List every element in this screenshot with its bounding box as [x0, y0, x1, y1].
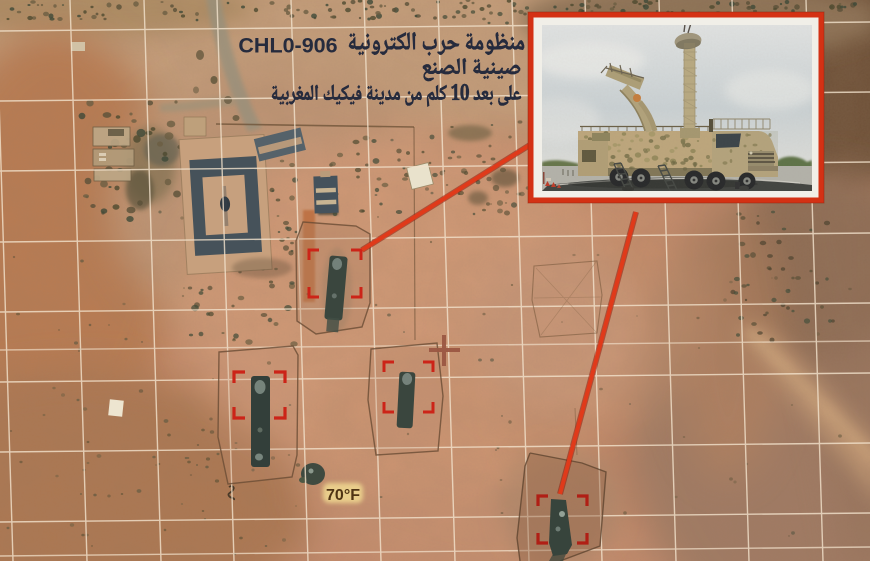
svg-text:CHL0-906: CHL0-906 — [238, 34, 337, 58]
svg-text:70°F: 70°F — [326, 487, 360, 504]
